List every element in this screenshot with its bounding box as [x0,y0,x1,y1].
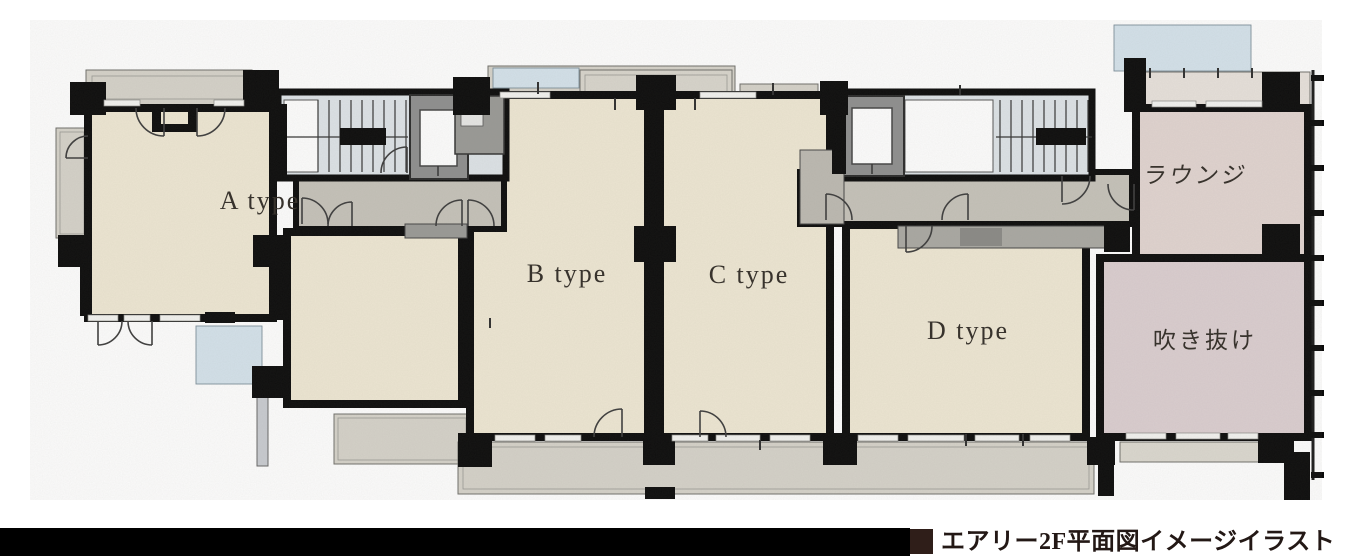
floor-plan-drawing [0,0,1358,556]
room-label-a-type: A type [220,186,301,216]
caption-marker-square [910,529,933,554]
room-label-void: 吹き抜け [1153,321,1257,355]
room-label-lounge: ラウンジ [1141,156,1251,190]
room-label-c-type: C type [709,260,790,290]
caption-text: エアリー2F平面図イメージイラスト [941,528,1335,556]
footer-bar [0,528,910,556]
floor-plan-illustration: A type B type C type D type ラウンジ 吹き抜け エア… [0,0,1358,556]
room-label-b-type: B type [527,259,608,289]
grain-texture [30,20,1322,500]
room-label-d-type: D type [927,316,1009,346]
